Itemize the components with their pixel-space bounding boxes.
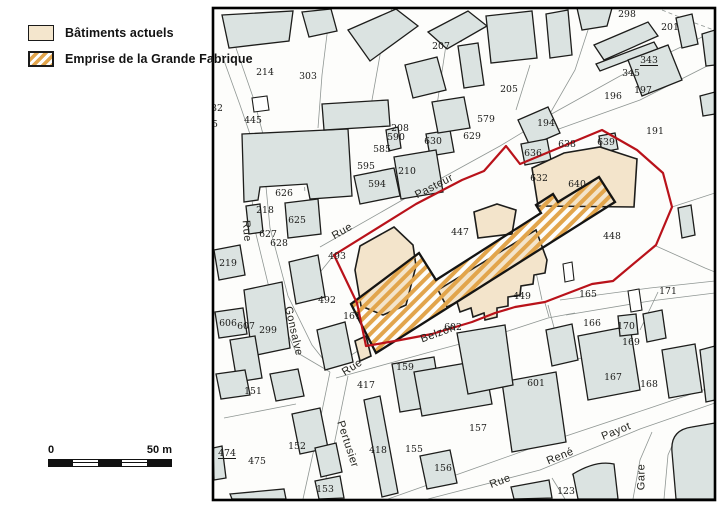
building (322, 100, 390, 130)
building (546, 324, 578, 366)
parcel-number: 449 (513, 291, 531, 302)
building (700, 92, 715, 116)
parcel-number: 151 (244, 386, 262, 397)
parcel-number: 171 (659, 286, 677, 297)
scale-bar-labels: 0 50 m (48, 444, 172, 456)
scale-end-label: 50 m (147, 444, 172, 456)
parcel-number: 418 (369, 445, 387, 456)
parcel-number: 639 (597, 137, 615, 148)
parcel-number: 157 (469, 423, 487, 434)
parcel-number: 640 (568, 179, 586, 190)
legend: Bâtiments actuels Emprise de la Grande F… (28, 24, 253, 76)
parcel-number: 595 (357, 161, 375, 172)
parcel-number: 579 (477, 114, 495, 125)
parcel-number: 196 (604, 91, 622, 102)
parcel-number: 475 (248, 456, 266, 467)
building (486, 11, 537, 63)
parcel-number: 448 (603, 231, 621, 242)
legend-item-emprise: Emprise de la Grande Fabrique (28, 50, 253, 67)
parcel-number: 166 (583, 318, 601, 329)
parcel-number: 345 (622, 68, 640, 79)
parcel-number: 474 (218, 448, 236, 459)
parcel-number: 629 (463, 131, 481, 142)
parcel-number: 445 (244, 115, 262, 126)
parcel-number: 214 (256, 67, 274, 78)
legend-swatch-batiments-actuels (28, 25, 54, 41)
parcel-number: 165 (579, 289, 597, 300)
parcel-number: 161 (343, 311, 361, 322)
scale-bar-segment (98, 460, 122, 466)
parcel-number: 207 (432, 41, 450, 52)
parcel-number: 152 (288, 441, 306, 452)
scale-bar-segment (147, 460, 171, 466)
parcel-number: 628 (270, 238, 288, 249)
scale-bar-segment (122, 460, 146, 466)
parcel-number: 606 (219, 318, 237, 329)
scale-start-label: 0 (48, 444, 54, 456)
parcel-number: 492 (318, 295, 336, 306)
parcel-number: 299 (259, 325, 277, 336)
parcel-number: 156 (434, 463, 452, 474)
parcel-number: 218 (256, 205, 274, 216)
parcel-number: 170 (617, 321, 635, 332)
building (643, 310, 666, 342)
parcel-number: 636 (524, 148, 542, 159)
street-name: Rue (240, 220, 254, 243)
parcel-number: 632 (530, 173, 548, 184)
scale-bar: 0 50 m (48, 444, 172, 467)
parcel-number: 298 (618, 9, 636, 20)
parcel-number: 417 (357, 380, 375, 391)
building (270, 369, 304, 401)
cadastral-map: 2143032072982052013433451961971911944452… (0, 0, 728, 515)
parcel-number: 205 (500, 84, 518, 95)
legend-label-emprise: Emprise de la Grande Fabrique (65, 52, 253, 66)
building-outline (252, 96, 269, 112)
parcel-number: 447 (451, 227, 469, 238)
building-outline (563, 262, 574, 282)
scale-bar-segment (73, 460, 97, 466)
parcel-number: 303 (299, 71, 317, 82)
parcel-number: 168 (640, 379, 658, 390)
building (672, 423, 715, 499)
street-name: Gare (636, 464, 648, 490)
cadastral-figure: 2143032072982052013433451961971911944452… (0, 0, 728, 515)
parcel-number: 638 (558, 139, 576, 150)
building (546, 10, 572, 58)
parcel-number: 197 (634, 85, 652, 96)
parcel-number: 210 (398, 166, 416, 177)
parcel-number: 219 (219, 258, 237, 269)
parcel-number: 159 (396, 362, 414, 373)
parcel-number: 343 (640, 55, 658, 66)
parcel-number: 167 (604, 372, 622, 383)
legend-item-batiments-actuels: Bâtiments actuels (28, 24, 253, 41)
legend-swatch-emprise (28, 51, 54, 67)
parcel-number: 123 (557, 486, 575, 497)
building-outline (628, 289, 642, 312)
parcel-number: 169 (622, 337, 640, 348)
parcel-number: 626 (275, 188, 293, 199)
scale-bar-segment (49, 460, 73, 466)
parcel-number: 191 (646, 126, 664, 137)
parcel-number: 594 (368, 179, 386, 190)
parcel-number: 625 (288, 215, 306, 226)
building (432, 97, 470, 133)
parcel-number: 630 (424, 136, 442, 147)
legend-label-batiments-actuels: Bâtiments actuels (65, 26, 174, 40)
parcel-number: 194 (537, 118, 555, 129)
parcel-number: 590 (387, 132, 405, 143)
parcel-number: 601 (527, 378, 545, 389)
parcel-number: 607 (237, 321, 255, 332)
parcel-number: 155 (405, 444, 423, 455)
parcel-number: 493 (328, 251, 346, 262)
building (662, 344, 702, 398)
parcel-number: 201 (661, 22, 679, 33)
parcel-number: 585 (373, 144, 391, 155)
parcel-number: 153 (316, 484, 334, 495)
scale-bar-track (48, 459, 172, 467)
